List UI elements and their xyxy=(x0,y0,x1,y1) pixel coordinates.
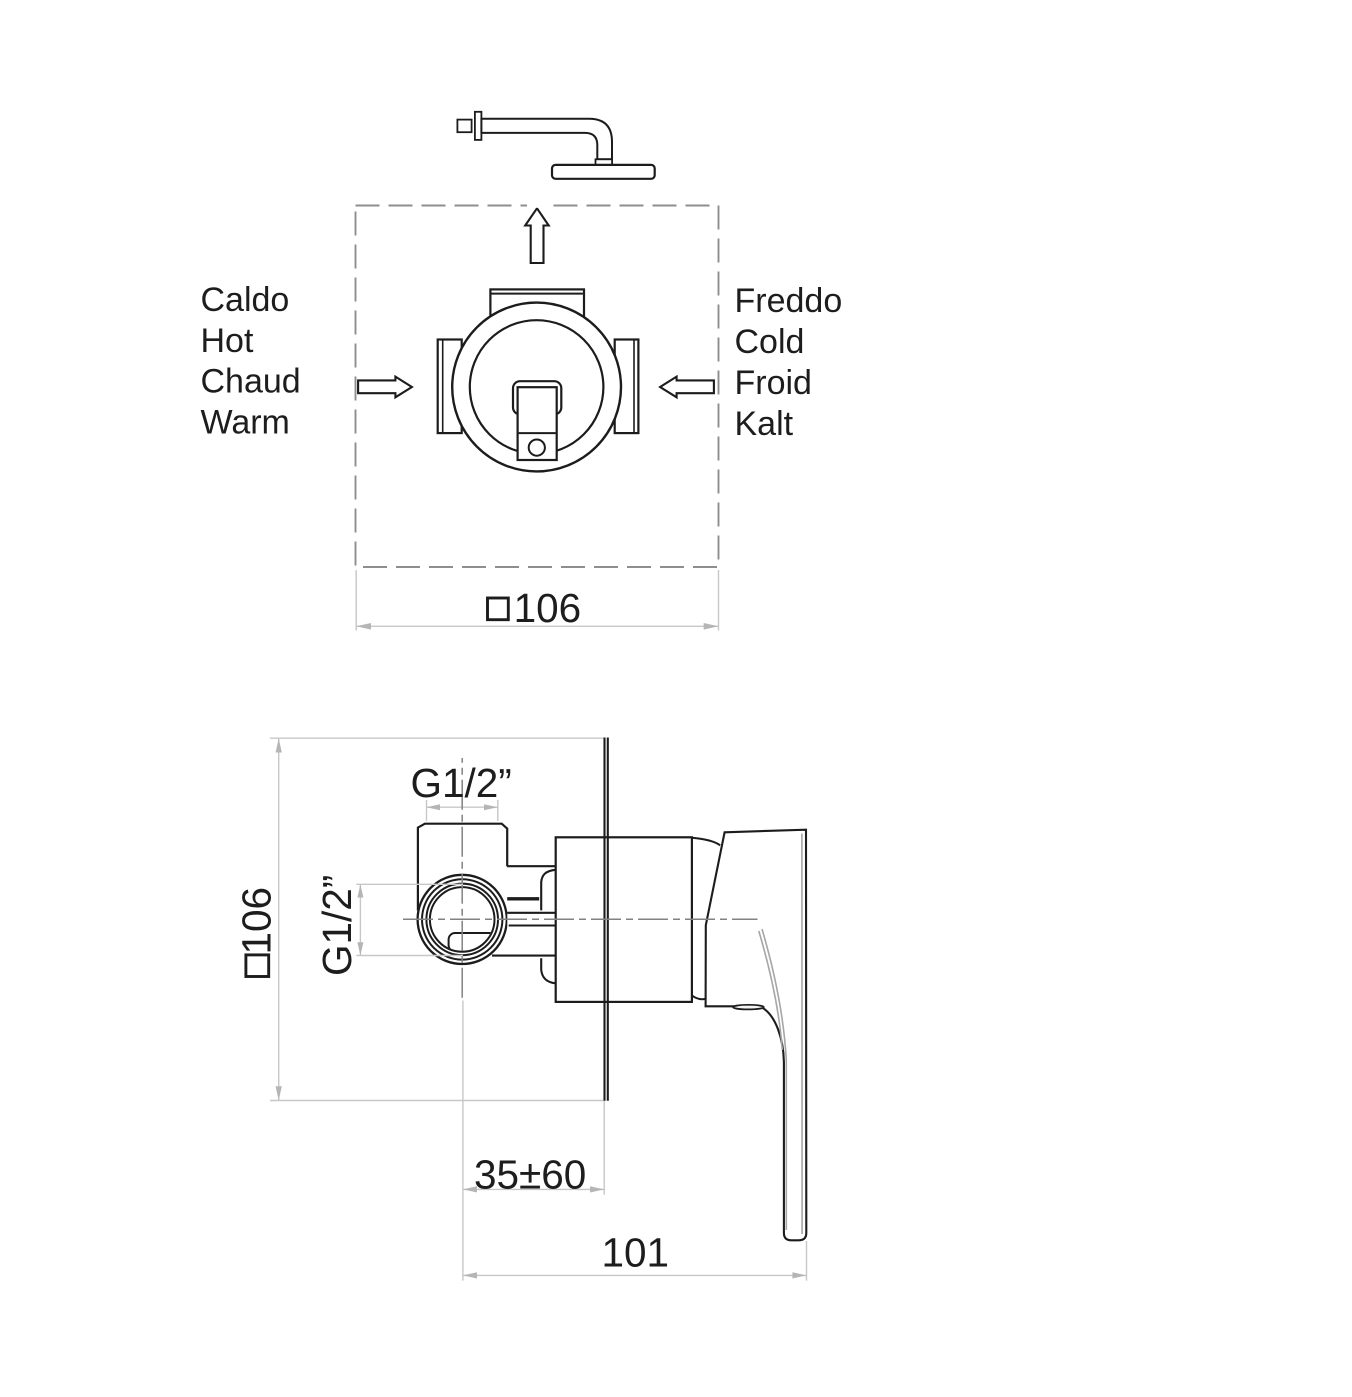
svg-text:Caldo: Caldo xyxy=(201,281,290,319)
svg-text:G1/2”: G1/2” xyxy=(314,875,360,976)
svg-text:Warm: Warm xyxy=(201,403,290,441)
svg-text:Freddo: Freddo xyxy=(735,282,843,320)
svg-text:Hot: Hot xyxy=(201,322,254,360)
svg-text:Cold: Cold xyxy=(735,323,805,361)
svg-text:Froid: Froid xyxy=(735,364,812,402)
svg-text:101: 101 xyxy=(602,1229,670,1275)
svg-text:106: 106 xyxy=(233,887,279,955)
svg-text:Kalt: Kalt xyxy=(735,405,794,443)
svg-text:35±60: 35±60 xyxy=(474,1152,586,1198)
svg-text:106: 106 xyxy=(514,585,582,631)
svg-text:Chaud: Chaud xyxy=(201,363,301,401)
svg-text:G1/2”: G1/2” xyxy=(411,760,512,806)
